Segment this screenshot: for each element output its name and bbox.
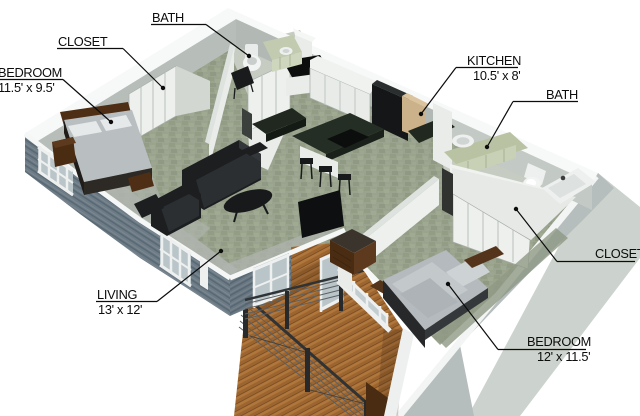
svg-text:13' x 12': 13' x 12' [98,302,142,317]
svg-text:12' x 11.5': 12' x 11.5' [537,349,590,364]
svg-text:KITCHEN: KITCHEN [467,53,521,68]
svg-text:LIVING: LIVING [97,287,137,302]
svg-text:BATH: BATH [152,10,184,25]
svg-text:BATH: BATH [546,87,578,102]
svg-text:11.5' x 9.5': 11.5' x 9.5' [0,80,55,95]
svg-text:10.5' x 8': 10.5' x 8' [473,68,520,83]
svg-text:CLOSET: CLOSET [58,34,108,49]
svg-text:BEDROOM: BEDROOM [0,65,62,80]
svg-text:BEDROOM: BEDROOM [527,334,591,349]
svg-text:CLOSET: CLOSET [595,246,640,261]
